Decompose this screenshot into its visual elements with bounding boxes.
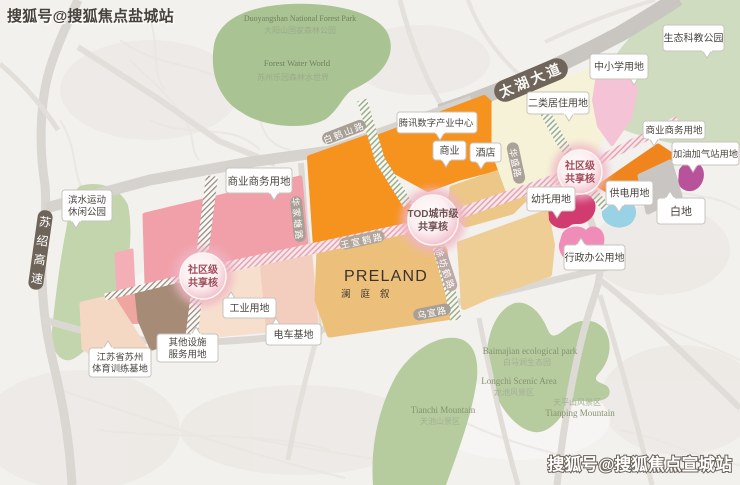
svg-text:Longchi Scenic Area: Longchi Scenic Area <box>481 376 556 386</box>
svg-text:电车基地: 电车基地 <box>274 328 314 341</box>
svg-text:苏州乐园森林水世界: 苏州乐园森林水世界 <box>257 72 329 82</box>
svg-text:体育训练基地: 体育训练基地 <box>92 363 148 374</box>
svg-text:澜庭叙: 澜庭叙 <box>341 288 400 300</box>
svg-text:商业: 商业 <box>440 144 460 157</box>
svg-text:高: 高 <box>33 251 47 268</box>
svg-text:天平山风景区: 天平山风景区 <box>553 397 601 407</box>
svg-text:中小学用地: 中小学用地 <box>594 60 644 73</box>
svg-text:Tianchi Mountain: Tianchi Mountain <box>411 405 476 415</box>
svg-text:共享核: 共享核 <box>418 220 448 233</box>
svg-text:搜狐号@搜狐焦点盐城站: 搜狐号@搜狐焦点盐城站 <box>7 7 174 25</box>
svg-text:共享核: 共享核 <box>565 172 595 185</box>
svg-text:滨水运动: 滨水运动 <box>68 194 106 206</box>
svg-text:PRELAND: PRELAND <box>344 268 428 285</box>
svg-text:Duoyangshan National Forest Pa: Duoyangshan National Forest Park <box>244 14 356 23</box>
svg-text:工业用地: 工业用地 <box>230 302 270 315</box>
svg-text:其他设施: 其他设施 <box>168 336 207 348</box>
svg-text:行政办公用地: 行政办公用地 <box>565 251 625 264</box>
svg-text:商业商务用地: 商业商务用地 <box>645 124 703 136</box>
svg-text:白地: 白地 <box>670 204 692 218</box>
svg-text:社区级: 社区级 <box>187 263 219 276</box>
svg-text:服务用地: 服务用地 <box>168 348 207 360</box>
svg-text:酒店: 酒店 <box>476 146 496 159</box>
svg-text:休闲公园: 休闲公园 <box>68 206 106 218</box>
svg-text:Tianping Mountain: Tianping Mountain <box>545 408 615 418</box>
svg-text:社区级: 社区级 <box>564 159 596 172</box>
svg-text:大阳山国家森林公园: 大阳山国家森林公园 <box>264 25 336 35</box>
svg-text:白马涧生态园: 白马涧生态园 <box>503 357 551 367</box>
svg-text:商业商务用地: 商业商务用地 <box>228 174 291 187</box>
svg-text:生态科教公园: 生态科教公园 <box>664 32 724 45</box>
svg-text:搜狐号@搜狐焦点宣城站: 搜狐号@搜狐焦点宣城站 <box>548 454 733 474</box>
svg-text:龙池风景区: 龙池风景区 <box>494 387 534 397</box>
svg-text:Baimajian ecological park: Baimajian ecological park <box>483 346 578 356</box>
svg-text:天池山景区: 天池山景区 <box>420 416 460 426</box>
svg-text:二类居住用地: 二类居住用地 <box>528 97 588 110</box>
svg-text:腾讯数字产业中心: 腾讯数字产业中心 <box>399 117 473 128</box>
svg-text:幼托用地: 幼托用地 <box>531 193 571 206</box>
svg-text:Forest Water World: Forest Water World <box>264 58 331 68</box>
svg-text:速: 速 <box>30 271 44 287</box>
svg-text:供电用地: 供电用地 <box>610 187 650 200</box>
svg-text:江苏省苏州: 江苏省苏州 <box>97 351 144 362</box>
svg-text:共享核: 共享核 <box>188 276 218 289</box>
svg-text:苏: 苏 <box>38 215 52 231</box>
svg-text:绍: 绍 <box>35 233 49 249</box>
svg-text:TOD城市级: TOD城市级 <box>408 207 460 220</box>
svg-text:加油加气站用地: 加油加气站用地 <box>673 148 738 159</box>
